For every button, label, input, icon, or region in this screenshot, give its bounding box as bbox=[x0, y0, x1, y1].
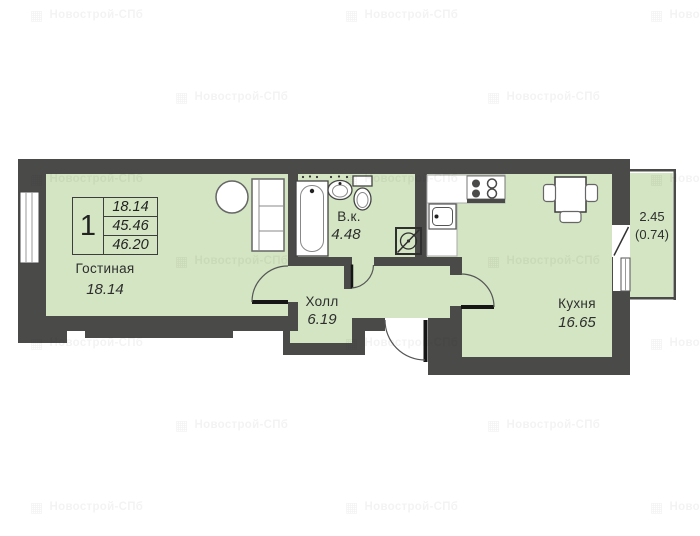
wall-top bbox=[18, 159, 630, 174]
stove bbox=[467, 176, 505, 203]
room-count: 1 bbox=[73, 198, 104, 254]
balcony-rail-bottom bbox=[630, 297, 676, 300]
floor-plan-page: ▦Новострой-СПб▦Новострой-СПб▦Новострой-С… bbox=[0, 0, 700, 536]
label-hall-area: 6.19 bbox=[297, 311, 347, 328]
area-net-value: 45.46 bbox=[104, 216, 157, 235]
wall-bath-bottom-left bbox=[288, 257, 352, 266]
door-entrance bbox=[385, 320, 426, 362]
wall-bath-bottom-right bbox=[374, 257, 462, 266]
label-bathroom-area: 4.48 bbox=[321, 226, 371, 243]
window-living bbox=[20, 192, 39, 263]
wall-step-left bbox=[18, 331, 67, 343]
wall-protrusion-right bbox=[352, 331, 365, 343]
round-table bbox=[216, 181, 248, 213]
balcony-rail-top bbox=[630, 169, 676, 172]
wall-right-bottom bbox=[612, 291, 630, 375]
wardrobe bbox=[252, 179, 284, 251]
doorway-bathroom-gap bbox=[352, 257, 374, 266]
wall-protrusion-bottom bbox=[283, 343, 365, 355]
wall-hall-kitchen-bottom bbox=[450, 306, 462, 318]
wall-step-mid bbox=[85, 331, 233, 338]
label-living-area: 18.14 bbox=[60, 281, 150, 298]
wall-hall-kitchen-top bbox=[450, 258, 462, 275]
kitchen-sink bbox=[429, 204, 456, 229]
area-living-value: 18.14 bbox=[104, 198, 157, 216]
area-values: 18.14 45.46 46.20 bbox=[104, 198, 157, 254]
wall-right-top bbox=[612, 159, 630, 225]
label-balcony-area-reduced: (0.74) bbox=[628, 227, 676, 242]
balcony-window bbox=[613, 257, 630, 291]
label-bathroom-name: В.к. bbox=[324, 209, 374, 224]
label-hall-name: Холл bbox=[297, 294, 347, 309]
wall-kitchen-bottom bbox=[428, 357, 615, 375]
area-total-value: 46.20 bbox=[104, 235, 157, 254]
toilet bbox=[353, 176, 372, 210]
apartment-info-table: 1 18.14 45.46 46.20 bbox=[72, 197, 158, 255]
room-hall-fill bbox=[298, 258, 450, 318]
doorway-kitchen-gap bbox=[450, 275, 462, 306]
label-balcony-area: 2.45 bbox=[632, 209, 672, 224]
wall-hall-bottom bbox=[352, 318, 385, 331]
label-living-name: Гостиная bbox=[55, 261, 155, 276]
label-kitchen-name: Кухня bbox=[551, 296, 603, 311]
wall-living-bottom bbox=[18, 316, 290, 331]
label-kitchen-area: 16.65 bbox=[549, 314, 605, 331]
